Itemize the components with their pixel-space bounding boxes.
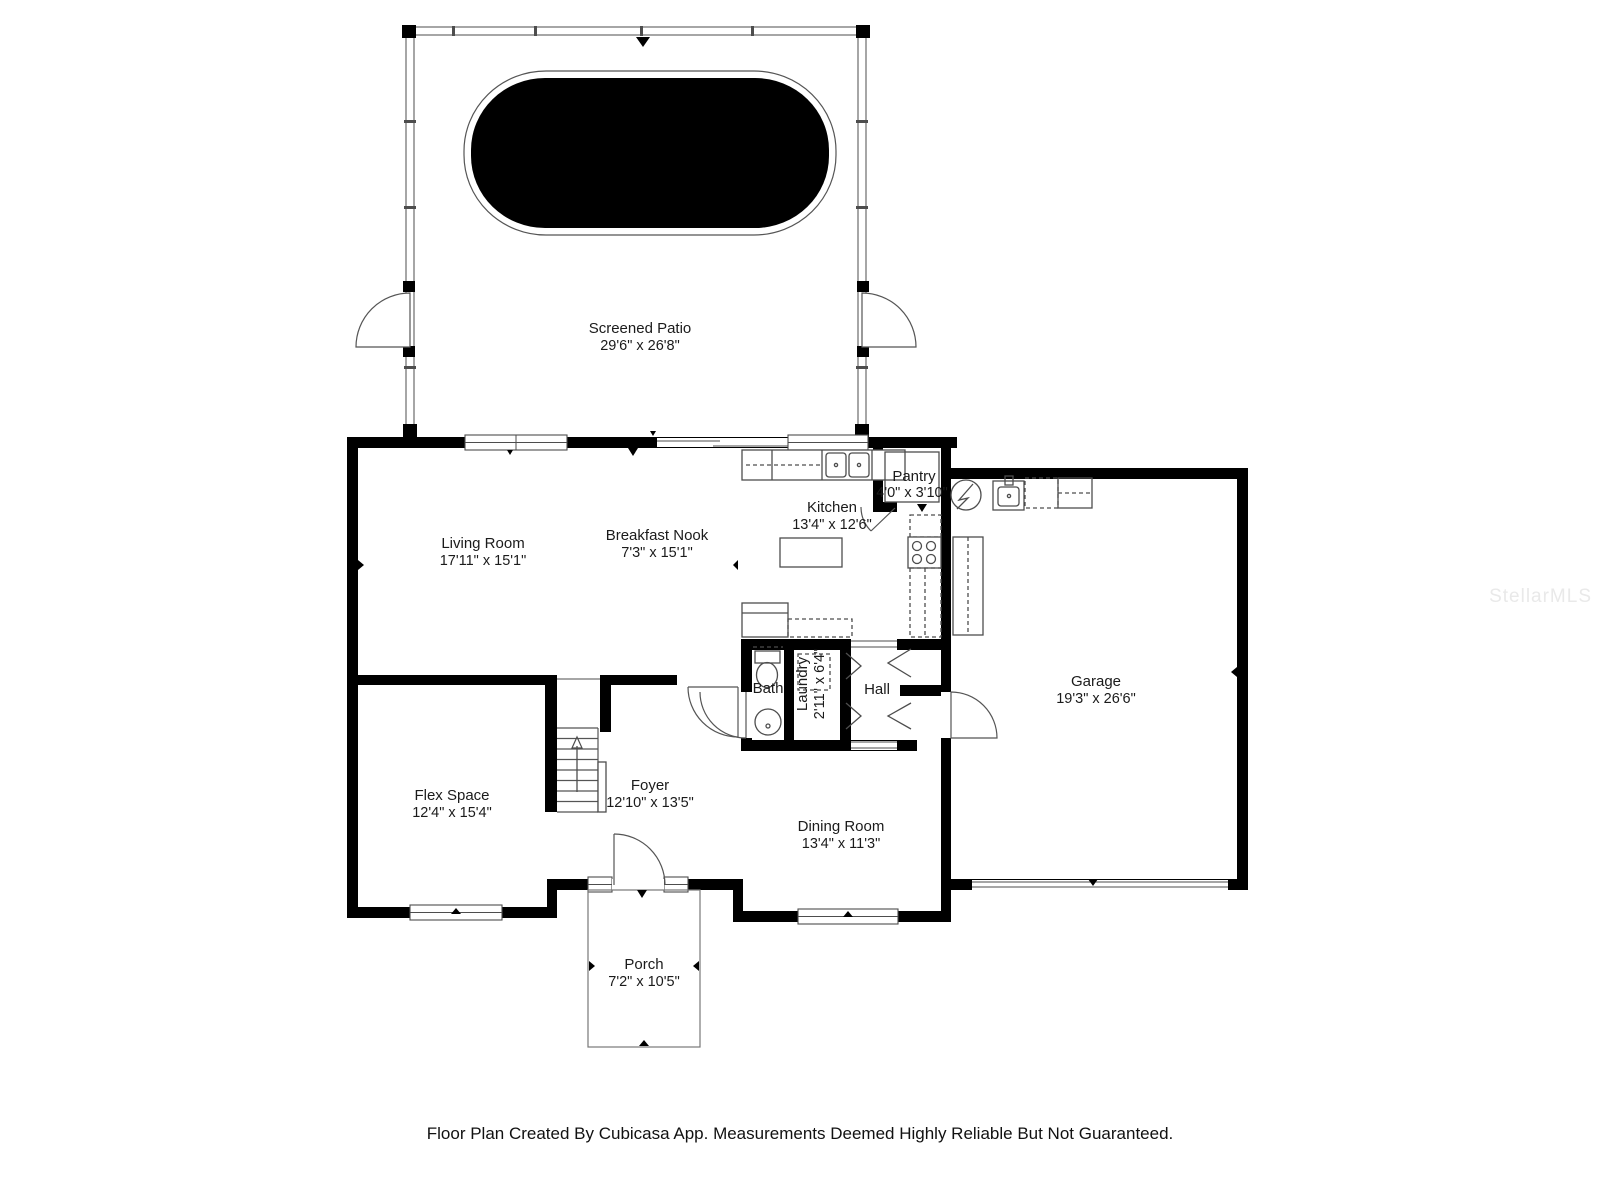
patio-screen-door-left — [356, 293, 410, 347]
garage-cabinet — [1025, 478, 1058, 508]
screen-mullion — [404, 366, 416, 369]
patio-post — [402, 25, 416, 38]
garage-service-door-swing — [951, 692, 997, 738]
toilet-tank — [755, 651, 780, 663]
garage-dims: 19'3" x 26'6" — [1056, 691, 1136, 707]
screen-mullion — [856, 206, 868, 209]
footer-disclaimer: Floor Plan Created By Cubicasa App. Meas… — [0, 1124, 1600, 1144]
breakfast-nook-dims: 7'3" x 15'1" — [621, 545, 692, 561]
flex-space-dims: 12'4" x 15'4" — [412, 805, 492, 821]
kitchen-cabinet — [742, 603, 788, 637]
screen-mullion — [404, 206, 416, 209]
patio-door-jamb — [857, 346, 869, 357]
staircase — [557, 728, 606, 812]
pantry-dims: 4'0" x 3'10" — [876, 485, 947, 501]
screened-patio — [356, 25, 916, 437]
foyer-dims: 12'10" x 13'5" — [606, 795, 694, 811]
patio-post — [403, 424, 417, 437]
front-door-swing — [614, 834, 665, 885]
wall-living-flex-divider — [347, 675, 557, 685]
front-door-opening — [612, 879, 664, 890]
patio-entrance-arrow — [636, 37, 650, 47]
wall-tick — [358, 560, 364, 570]
patio-door-jamb — [857, 281, 869, 292]
bath-sink — [755, 709, 781, 735]
pantry-entrance-arrow — [917, 504, 927, 512]
kitchen-counter — [742, 450, 905, 480]
cased-opening-chevron — [888, 703, 911, 729]
hall-label: Hall — [864, 681, 890, 698]
wall-tick — [507, 450, 513, 455]
dining-room-dims: 13'4" x 11'3" — [802, 836, 880, 852]
entrance-arrow — [637, 890, 647, 898]
wall-garage-right — [1237, 468, 1248, 890]
wall-bath-laundry — [784, 650, 794, 740]
screen-mullion — [640, 26, 643, 36]
dining-room-label: Dining Room — [798, 818, 885, 835]
living-room-label: Living Room — [441, 535, 524, 552]
wall-tick — [1231, 667, 1237, 677]
wall-tick — [693, 961, 699, 971]
screen-mullion — [856, 366, 868, 369]
screen-mullion — [856, 120, 868, 123]
screen-mullion — [534, 26, 537, 36]
bath-label: Bath — [753, 680, 784, 697]
garage-label: Garage — [1071, 673, 1121, 690]
screen-mullion — [404, 120, 416, 123]
water-heater-bolt — [957, 484, 973, 509]
kitchen-label: Kitchen — [807, 499, 857, 516]
wall-pantry-bottom — [873, 502, 897, 512]
flex-space-label: Flex Space — [414, 787, 489, 804]
patio-post — [856, 25, 870, 38]
screen-mullion — [751, 26, 754, 36]
stove — [908, 537, 941, 568]
floor-plan-drawing: Screened Patio 29'6" x 26'8" Living Room… — [0, 0, 1600, 1200]
garage-fixtures — [951, 476, 1092, 635]
wall-garage-top — [941, 468, 1248, 479]
laundry-dims: 2'11" x 6'4" — [812, 649, 828, 719]
entrance-arrow — [628, 448, 638, 456]
pantry-label: Pantry — [892, 468, 936, 485]
garage-service-door-opening — [941, 692, 951, 738]
breakfast-nook-label: Breakfast Nook — [606, 527, 709, 544]
corridor-door-swing — [688, 687, 738, 737]
wall-garage-west — [941, 437, 951, 922]
wall-hall-left-stub — [840, 683, 851, 699]
wall-tick — [650, 431, 656, 436]
stellar-mls-watermark: StellarMLS — [1489, 586, 1592, 608]
patio-screen-wall-left — [406, 27, 414, 437]
kitchen-dims: 13'4" x 12'6" — [792, 517, 872, 533]
living-room-dims: 17'11" x 15'1" — [440, 553, 527, 569]
screened-patio-label: Screened Patio — [589, 320, 692, 337]
pool — [471, 78, 829, 228]
laundry-label: Laundry — [794, 656, 811, 711]
patio-screen-wall-right — [858, 27, 866, 437]
cased-opening-chevron — [888, 649, 911, 677]
kitchen-counter — [910, 515, 941, 537]
screened-patio-dims: 29'6" x 26'8" — [600, 338, 680, 354]
wall-tick — [639, 1040, 649, 1046]
stair-railing — [598, 762, 606, 812]
kitchen-upper-cabinet — [788, 619, 852, 637]
wall-stair-left — [545, 675, 557, 812]
porch-dims: 7'2" x 10'5" — [608, 974, 679, 990]
wall-hall-top — [897, 639, 941, 650]
patio-door-jamb — [403, 346, 415, 357]
porch-label: Porch — [624, 956, 663, 973]
water-heater — [951, 480, 981, 510]
wall-hall-right-stub — [900, 685, 941, 696]
wall-tick — [589, 961, 595, 971]
wall-tick — [733, 560, 738, 570]
wall-bath-top — [741, 639, 851, 650]
patio-screen-door-right — [862, 293, 916, 347]
screen-mullion — [452, 26, 455, 36]
patio-door-jamb — [403, 281, 415, 292]
bath-door-swing — [700, 692, 746, 738]
foyer-label: Foyer — [631, 777, 669, 794]
floor-plan-page: Screened Patio 29'6" x 26'8" Living Room… — [0, 0, 1600, 1200]
patio-screen-wall-top — [406, 27, 866, 35]
wall-corridor — [600, 675, 677, 685]
wall-stair-stub — [600, 675, 611, 732]
kitchen-island — [780, 538, 842, 567]
